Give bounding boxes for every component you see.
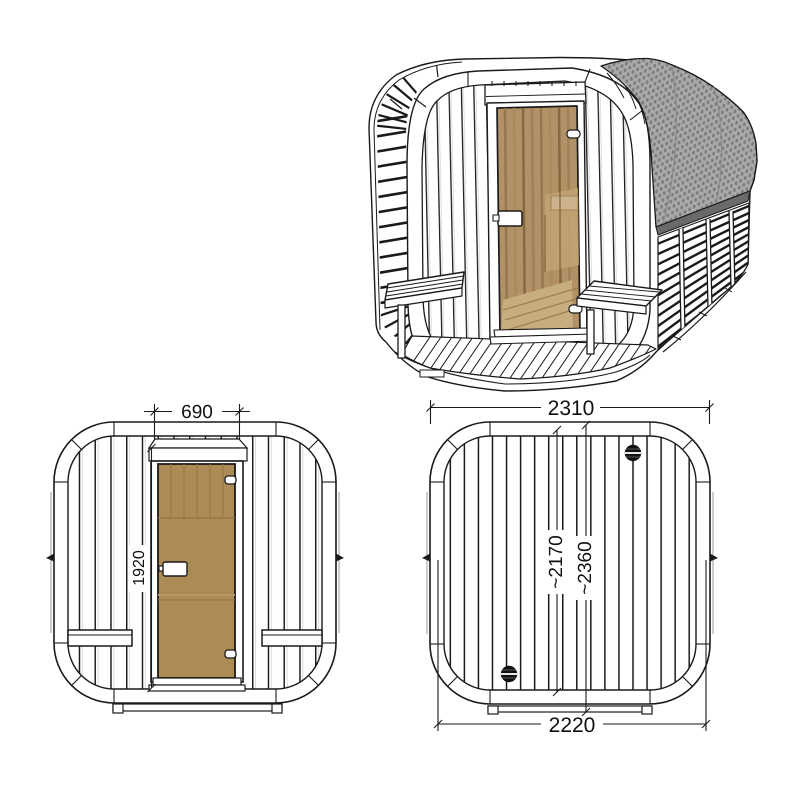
- svg-text:690: 690: [181, 402, 213, 423]
- svg-text:2220: 2220: [549, 714, 596, 737]
- svg-text:~2170: ~2170: [546, 535, 567, 588]
- svg-text:~2360: ~2360: [575, 541, 596, 594]
- svg-text:1920: 1920: [131, 550, 148, 586]
- svg-text:2310: 2310: [548, 397, 595, 420]
